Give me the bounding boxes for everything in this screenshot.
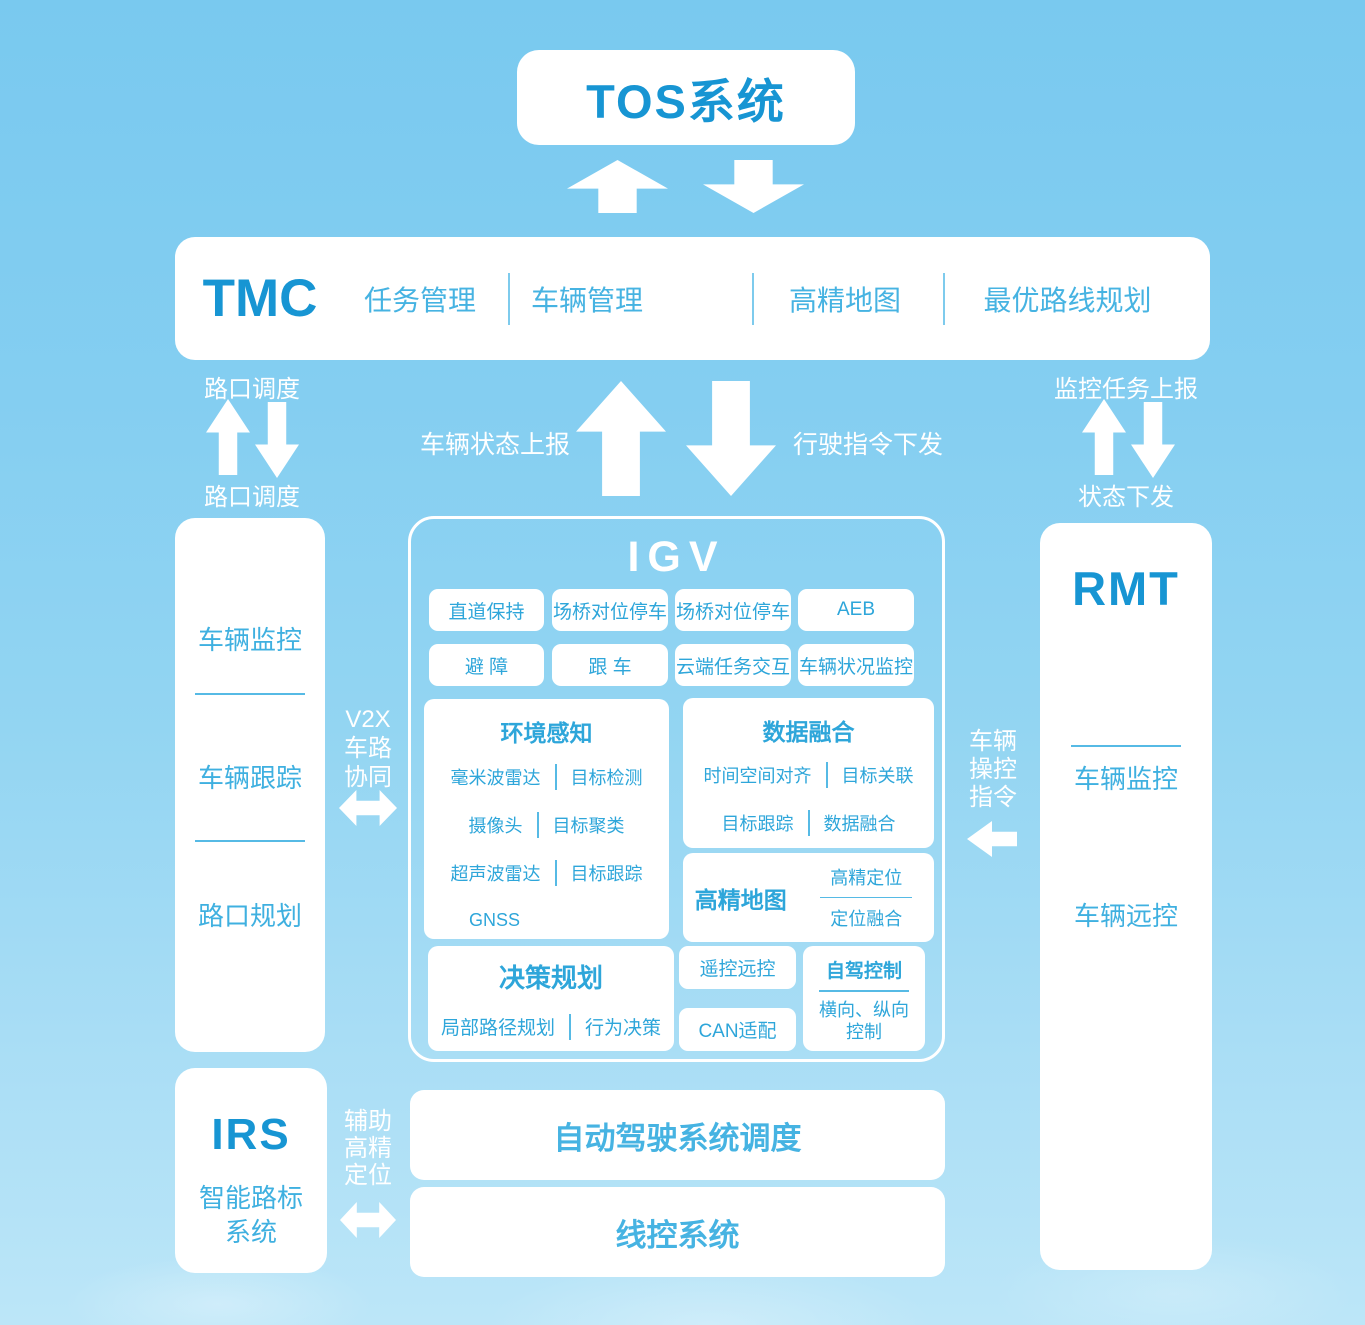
divider — [752, 273, 754, 325]
igv-remote-box: 遥控远控 — [679, 946, 796, 989]
panel-item-vehicle-tracking: 车辆跟踪 — [175, 758, 325, 795]
label: 自动驾驶系统调度 — [554, 1113, 802, 1158]
label: 超声波雷达 — [451, 860, 541, 886]
up-arrow-icon — [206, 399, 250, 475]
aux-line3: 定位 — [333, 1162, 403, 1189]
label: 车辆状况监控 — [799, 652, 913, 679]
vehicle-ctrl-line2: 操控 — [958, 756, 1028, 784]
architecture-diagram: TOS系统 TMC 任务管理 车辆管理 高精地图 最优路线规划 路口调度 路口调… — [0, 0, 1365, 1325]
vehicle-ctrl-label: 车辆 操控 指令 — [958, 728, 1028, 812]
label: 时间空间对齐 — [704, 762, 812, 788]
rmt-panel: RMT 车辆监控 车辆远控 — [1040, 523, 1212, 1270]
label: 云端任务交互 — [676, 652, 790, 679]
igv-hdmap-box: 高精地图 高精定位 定位融合 — [683, 853, 934, 942]
perception-row: 摄像头 目标聚类 — [424, 812, 669, 838]
label: 避 障 — [465, 652, 508, 679]
tmc-item-route-planning: 最优路线规划 — [960, 237, 1175, 360]
label: 目标跟踪 — [571, 860, 643, 886]
label: 目标关联 — [842, 762, 914, 788]
divider — [537, 812, 539, 838]
label: 场桥对位停车 — [676, 597, 790, 624]
selfdrive-line: 横向、纵向 — [803, 999, 925, 1021]
label: 目标检测 — [571, 764, 643, 790]
label: 直道保持 — [448, 597, 524, 624]
divider — [1071, 745, 1181, 747]
fusion-row: 时间空间对齐 目标关联 — [683, 762, 934, 788]
label: 行为决策 — [585, 1013, 661, 1040]
down-arrow-icon — [255, 402, 299, 478]
igv-can-box: CAN适配 — [679, 1008, 796, 1051]
fusion-title: 数据融合 — [683, 713, 934, 747]
label: 场桥对位停车 — [553, 597, 667, 624]
up-arrow-icon — [567, 160, 668, 213]
igv-fusion-box: 数据融合 时间空间对齐 目标关联 目标跟踪 数据融合 — [683, 698, 934, 848]
divider — [819, 990, 909, 992]
selfdrive-line: 控制 — [803, 1021, 925, 1043]
divider — [826, 762, 828, 788]
igv-feature-aeb: AEB — [798, 589, 914, 631]
igv-feature-lane-keep: 直道保持 — [429, 589, 544, 631]
v2x-label: V2X 车路 协同 — [330, 705, 406, 792]
tmc-left-panel: 车辆监控 车辆跟踪 路口规划 — [175, 518, 325, 1052]
rmt-title: RMT — [1040, 561, 1212, 616]
label: 摄像头 — [469, 812, 523, 838]
rmt-item-vehicle-monitor: 车辆监控 — [1040, 759, 1212, 796]
perception-row: 毫米波雷达 目标检测 — [424, 764, 669, 790]
hdmap-title: 高精地图 — [683, 881, 798, 915]
label: 线控系统 — [616, 1210, 740, 1255]
v2x-line3: 协同 — [330, 763, 406, 792]
divider — [808, 810, 810, 836]
planning-row: 局部路径规划 行为决策 — [428, 1013, 674, 1040]
divider — [569, 1014, 571, 1040]
irs-subtitle-line1: 智能路标 — [175, 1181, 327, 1215]
label: 遥控远控 — [699, 954, 775, 981]
igv-feature-crane-align-1: 场桥对位停车 — [552, 589, 668, 631]
igv-perception-box: 环境感知 毫米波雷达 目标检测 摄像头 目标聚类 超声波雷达 目标跟踪 GNSS — [424, 699, 669, 939]
monitor-task-up-label: 监控任务上报 — [1044, 369, 1208, 404]
v2x-line2: 车路 — [330, 734, 406, 763]
aux-positioning-label: 辅助 高精 定位 — [333, 1108, 403, 1189]
tmc-title: TMC — [205, 237, 315, 360]
igv-feature-cloud-task: 云端任务交互 — [675, 644, 791, 686]
tmc-item-hd-map: 高精地图 — [770, 237, 920, 360]
tmc-item-task-mgmt: 任务管理 — [345, 237, 495, 360]
selfdrive-title: 自驾控制 — [803, 956, 925, 983]
label: 跟 车 — [588, 652, 631, 679]
panel-item-junction-planning: 路口规划 — [175, 896, 325, 933]
junction-dispatch-label-top: 路口调度 — [192, 369, 312, 404]
igv-planning-box: 决策规划 局部路径规划 行为决策 — [428, 946, 674, 1051]
divider — [508, 273, 510, 325]
label: 毫米波雷达 — [451, 764, 541, 790]
up-arrow-icon — [1082, 399, 1126, 475]
big-down-arrow-icon — [686, 381, 776, 496]
down-arrow-icon — [1131, 402, 1175, 478]
perception-title: 环境感知 — [424, 714, 669, 748]
drive-command-down-label: 行驶指令下发 — [788, 425, 948, 461]
drive-by-wire-bar: 线控系统 — [410, 1187, 945, 1277]
label: CAN适配 — [698, 1016, 776, 1043]
junction-dispatch-label-bottom: 路口调度 — [192, 477, 312, 512]
divider — [195, 693, 305, 695]
big-up-arrow-icon — [576, 381, 666, 496]
vehicle-ctrl-line3: 指令 — [958, 784, 1028, 812]
igv-title: IGV — [411, 533, 942, 582]
irs-title: IRS — [175, 1110, 327, 1160]
vehicle-ctrl-line1: 车辆 — [958, 728, 1028, 756]
planning-title: 决策规划 — [428, 958, 674, 995]
double-arrow-icon — [339, 790, 397, 826]
tmc-bar: TMC 任务管理 车辆管理 高精地图 最优路线规划 — [175, 237, 1210, 360]
igv-selfdrive-box: 自驾控制 横向、纵向 控制 — [803, 946, 925, 1051]
v2x-line1: V2X — [330, 705, 406, 734]
perception-row: 超声波雷达 目标跟踪 — [424, 860, 669, 886]
gnss-label: GNSS — [469, 910, 520, 931]
divider — [195, 840, 305, 842]
divider — [555, 764, 557, 790]
igv-feature-follow: 跟 车 — [552, 644, 668, 686]
irs-subtitle-line2: 系统 — [175, 1215, 327, 1249]
tos-title: TOS系统 — [586, 63, 786, 132]
tos-system-box: TOS系统 — [517, 50, 855, 145]
fusion-row: 目标跟踪 数据融合 — [683, 810, 934, 836]
igv-feature-crane-align-2: 场桥对位停车 — [675, 589, 791, 631]
label: 数据融合 — [824, 810, 896, 836]
panel-item-vehicle-monitor: 车辆监控 — [175, 620, 325, 657]
divider — [555, 860, 557, 886]
divider — [943, 273, 945, 325]
label: AEB — [837, 599, 875, 621]
aux-line1: 辅助 — [333, 1108, 403, 1135]
hdmap-item: 高精定位 — [798, 864, 934, 890]
label: 目标跟踪 — [722, 810, 794, 836]
divider — [820, 897, 912, 899]
auto-driving-dispatch-bar: 自动驾驶系统调度 — [410, 1090, 945, 1180]
label: 目标聚类 — [553, 812, 625, 838]
irs-panel: IRS 智能路标 系统 — [175, 1068, 327, 1273]
rmt-item-vehicle-remote: 车辆远控 — [1040, 896, 1212, 933]
igv-container: IGV 直道保持 场桥对位停车 场桥对位停车 AEB 避 障 跟 车 云端任务交… — [408, 516, 945, 1062]
left-arrow-icon — [967, 821, 1017, 857]
status-down-label: 状态下发 — [1066, 477, 1186, 512]
hdmap-item: 定位融合 — [798, 905, 934, 931]
perception-row: GNSS — [424, 910, 669, 931]
aux-line2: 高精 — [333, 1135, 403, 1162]
label: 局部路径规划 — [441, 1013, 555, 1040]
vehicle-status-up-label: 车辆状态上报 — [415, 425, 575, 461]
igv-feature-obstacle-avoid: 避 障 — [429, 644, 544, 686]
down-arrow-icon — [703, 160, 804, 213]
tmc-item-vehicle-mgmt: 车辆管理 — [512, 237, 662, 360]
igv-feature-vehicle-status-monitor: 车辆状况监控 — [798, 644, 914, 686]
